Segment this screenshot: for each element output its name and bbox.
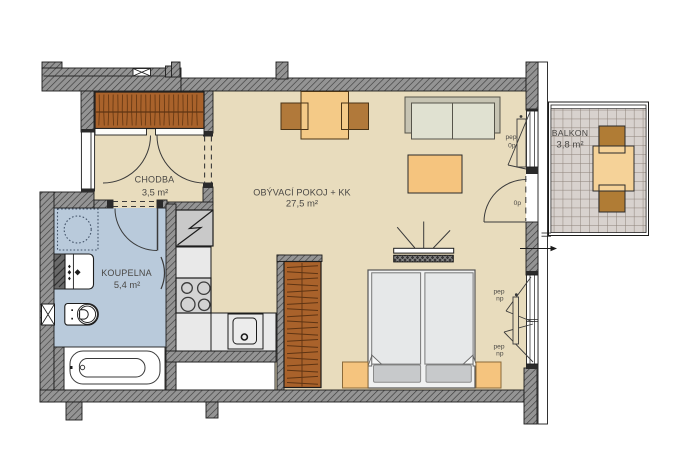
svg-text:27,5 m²: 27,5 m² <box>286 198 318 209</box>
svg-text:BALKON: BALKON <box>552 128 588 138</box>
svg-text:pep: pep <box>505 134 516 141</box>
svg-text:np: np <box>496 296 504 303</box>
svg-text:pep: pep <box>493 289 504 296</box>
svg-text:0p: 0p <box>514 200 522 207</box>
svg-text:np: np <box>496 351 504 358</box>
svg-text:CHODBA: CHODBA <box>135 175 175 185</box>
svg-text:KOUPELNA: KOUPELNA <box>101 268 152 278</box>
svg-text:OBÝVACÍ POKOJ + KK: OBÝVACÍ POKOJ + KK <box>253 188 350 198</box>
svg-text:3,5 m²: 3,5 m² <box>142 188 168 198</box>
svg-text:0p: 0p <box>508 143 516 150</box>
svg-text:pep: pep <box>493 344 504 351</box>
svg-text:5,4 m²: 5,4 m² <box>114 280 140 290</box>
svg-text:3,8 m²: 3,8 m² <box>556 140 584 151</box>
